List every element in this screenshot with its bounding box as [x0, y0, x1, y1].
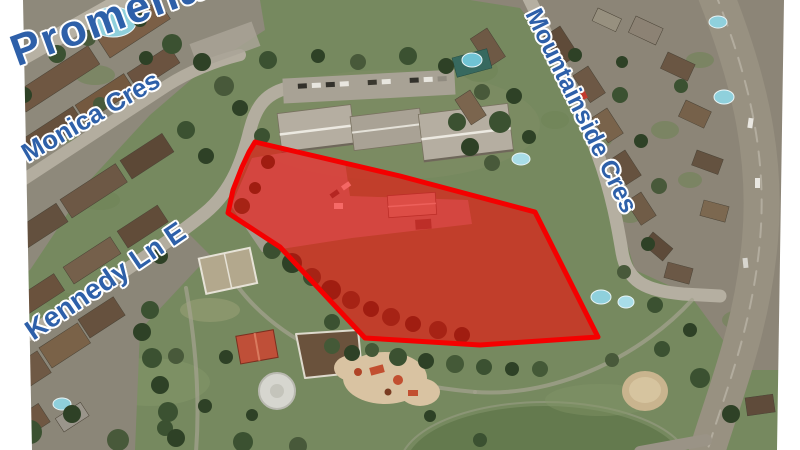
sand-patch [622, 371, 668, 411]
aerial-map-screenshot: Promenade Monica Cres Kennedy Ln E Mount… [0, 0, 800, 450]
pavilion [236, 330, 278, 364]
pool [714, 90, 734, 104]
pool [709, 16, 727, 28]
pool [462, 53, 482, 67]
satellite-imagery [0, 0, 800, 450]
pool [512, 153, 530, 165]
splash-pad [259, 373, 295, 409]
pool [618, 296, 634, 308]
pool [591, 290, 611, 304]
